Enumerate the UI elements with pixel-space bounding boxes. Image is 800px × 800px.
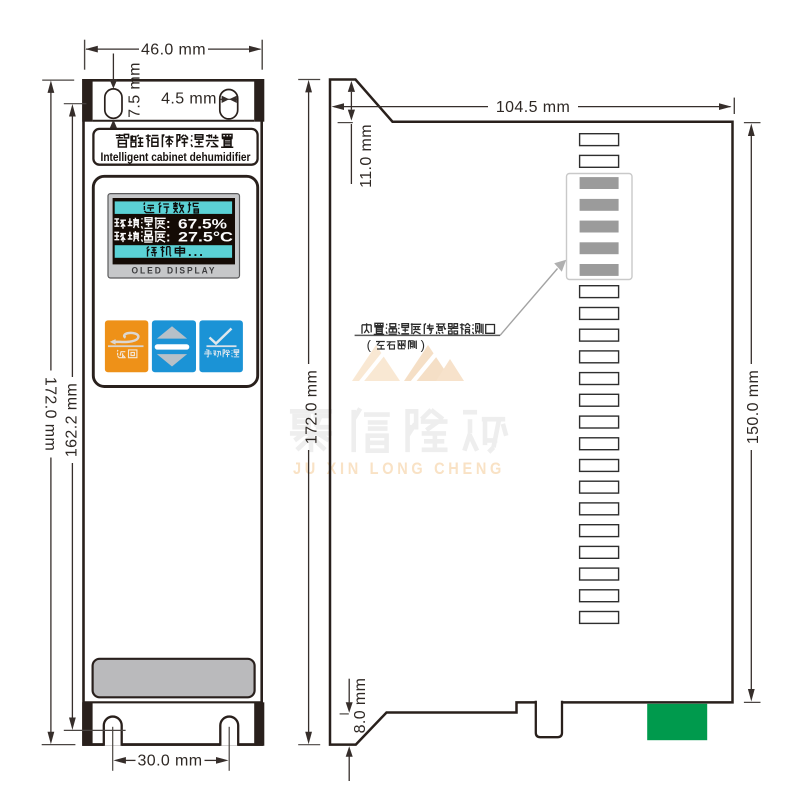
svg-text:4.5 mm: 4.5 mm	[161, 91, 217, 108]
svg-text:OLED DISPLAY: OLED DISPLAY	[132, 265, 217, 276]
svg-text:172.0 mm: 172.0 mm	[303, 370, 320, 444]
svg-text:162.2 mm: 162.2 mm	[64, 383, 81, 457]
svg-text:): )	[421, 337, 426, 352]
svg-text:7.5 mm: 7.5 mm	[126, 62, 143, 118]
svg-text:27.5°C: 27.5°C	[178, 229, 233, 245]
svg-text:172.0 mm: 172.0 mm	[41, 377, 58, 451]
svg-text:30.0 mm: 30.0 mm	[137, 752, 202, 769]
svg-text:104.5 mm: 104.5 mm	[496, 99, 570, 116]
svg-text::: :	[166, 229, 171, 244]
svg-text:Intelligent cabinet dehumidifi: Intelligent cabinet dehumidifier	[101, 152, 251, 164]
svg-text:150.0 mm: 150.0 mm	[745, 370, 762, 444]
svg-text:11.0 mm: 11.0 mm	[358, 124, 375, 188]
svg-text:46.0 mm: 46.0 mm	[141, 42, 206, 59]
svg-text:(: (	[367, 337, 372, 352]
svg-text:JU XIN LONG CHENG: JU XIN LONG CHENG	[293, 460, 505, 478]
svg-text:...: ...	[188, 244, 205, 259]
svg-text:8.0 mm: 8.0 mm	[352, 678, 369, 734]
